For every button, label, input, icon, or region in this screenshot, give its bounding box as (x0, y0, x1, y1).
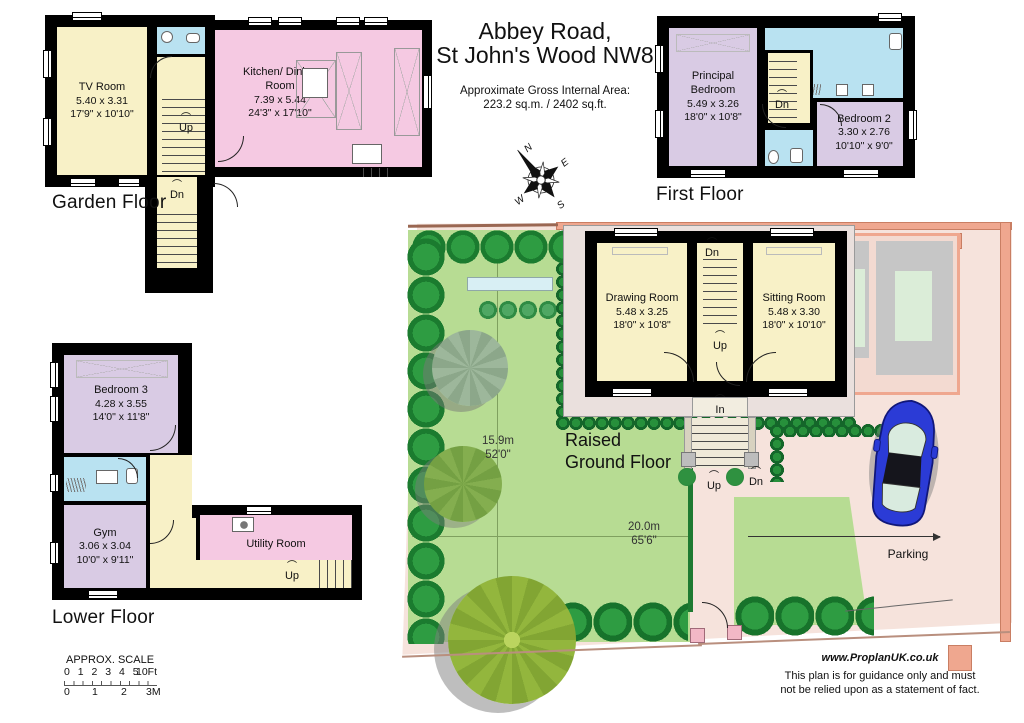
room-metric: 3.30 x 2.76 (838, 126, 890, 140)
entrance-steps (692, 418, 748, 468)
window-marker (88, 590, 118, 599)
area-value: 223.2 sq.m. / 2402 sq.ft. (420, 99, 670, 111)
floorplan-canvas: Abbey Road, St John's Wood NW8 Approxima… (0, 0, 1024, 723)
tree-icon (800, 552, 878, 638)
window-marker (50, 362, 59, 388)
window-marker (246, 506, 272, 515)
bush-icon (678, 468, 696, 486)
room-imperial: 10'10" x 9'0" (835, 140, 893, 154)
room-imperial: 17'9" x 10'10" (70, 108, 133, 122)
garden-pond (467, 277, 553, 291)
room-imperial: 18'0" x 10'10" (762, 319, 825, 333)
window-marker (72, 12, 102, 21)
scale-title: APPROX. SCALE (66, 654, 184, 666)
boundary-wall-right (1000, 222, 1011, 642)
garden-width-dimension: 20.0m 65'6" (614, 520, 674, 549)
garden-depth-dimension: 15.9m 52'0" (468, 434, 528, 463)
dn-label: Dn (698, 241, 726, 260)
toilet-icon (186, 33, 200, 43)
page-title-line1: Abbey Road, (420, 18, 670, 45)
hedge-parking-h (770, 424, 884, 437)
room-name: TV Room (79, 80, 125, 94)
window-marker (770, 228, 814, 237)
gate-post (690, 628, 705, 643)
tree-icon (432, 330, 508, 406)
scale-m-0: 0 (64, 686, 70, 698)
room-gym: Gym 3.06 x 3.04 10'0" x 9'11" (64, 505, 146, 588)
parking-label: Parking (878, 547, 938, 562)
toilet-icon (889, 33, 902, 50)
scale-m-1: 1 (92, 686, 98, 698)
tree-column-left (402, 238, 452, 644)
window-marker (908, 110, 917, 140)
up-label: Up (706, 334, 734, 353)
garden-floor-stairs-down (157, 207, 197, 267)
step-post (744, 452, 759, 467)
exterior-steps (356, 168, 392, 177)
room-metric: 5.48 x 3.30 (768, 306, 820, 320)
room-imperial: 18'0" x 10'8" (684, 111, 742, 125)
scale-ft-end: 10Ft (136, 666, 157, 678)
kitchen-sink-icon (352, 144, 382, 164)
window-marker (843, 169, 879, 178)
window-marker (118, 178, 140, 187)
window-marker (43, 118, 52, 146)
up-label: Up (278, 564, 306, 583)
room-tv-room: TV Room 5.40 x 3.31 17'9" x 10'10" (57, 27, 147, 175)
dn-label: Dn (742, 470, 770, 489)
room-name: Principal Bedroom (675, 69, 751, 98)
sink-icon (862, 84, 874, 96)
room-metric: 5.40 x 3.31 (76, 95, 128, 109)
window-marker (768, 388, 808, 397)
window-marker (70, 178, 96, 187)
room-utility: Utility Room (200, 515, 352, 560)
door-arc (214, 183, 238, 207)
room-name: Sitting Room (763, 291, 826, 305)
window-marker (50, 396, 59, 422)
scale-ft-numbers: 0 1 2 3 4 5 (64, 666, 141, 678)
bush-row (478, 300, 558, 320)
website-label: www.ProplanUK.co.uk (760, 652, 1000, 664)
room-name: Gym (93, 526, 116, 540)
toilet-icon (790, 148, 803, 163)
window-marker (655, 45, 664, 73)
window-marker (423, 75, 432, 109)
in-label: In (702, 398, 738, 417)
room-imperial: 14'0" x 11'8" (93, 411, 150, 425)
bed-icon (676, 34, 750, 52)
window-marker (50, 474, 59, 492)
sink-icon (96, 470, 118, 484)
sink-icon (161, 31, 173, 43)
scale-bar: APPROX. SCALE 0 1 2 3 4 5 10Ft 0 1 2 3M (64, 654, 184, 699)
lower-floor-title: Lower Floor (52, 607, 155, 629)
step-post (681, 452, 696, 467)
kitchen-counter (394, 48, 420, 136)
gate-post (727, 625, 742, 640)
washer-icon (232, 517, 254, 532)
scale-m-3: 3M (146, 686, 161, 698)
room-metric: 3.06 x 3.04 (79, 540, 131, 554)
parking-arrow-line (748, 536, 940, 537)
compass-e-label: E (559, 157, 571, 170)
window-marker (655, 110, 664, 138)
room-imperial: 18'0" x 10'8" (613, 319, 671, 333)
room-name: Utility Room (246, 537, 305, 551)
room-name: Bedroom 2 (837, 112, 891, 126)
room-name: Bedroom 3 (94, 383, 148, 397)
window-marker (612, 388, 652, 397)
hob-icon (302, 68, 328, 98)
sink-icon (836, 84, 848, 96)
up-label: Up (700, 474, 728, 493)
window-marker (614, 228, 658, 237)
compass-icon: N E S W (499, 134, 583, 218)
window-seat (766, 247, 822, 255)
room-metric: 5.48 x 3.25 (616, 306, 668, 320)
page-title-line2: St John's Wood NW8 (420, 42, 670, 69)
raised-ground-floor-stairs (703, 252, 737, 330)
compass-w-label: W (513, 193, 528, 208)
window-marker (50, 542, 59, 564)
arrow-tip-icon (933, 533, 941, 541)
room-name: Drawing Room (606, 291, 679, 305)
garden-fence (688, 468, 693, 612)
kitchen-counter (336, 52, 362, 130)
window-marker (690, 169, 726, 178)
raised-ground-floor-title: Raised Ground Floor (565, 430, 671, 473)
bed-icon (76, 360, 168, 378)
room-imperial: 10'0" x 9'11" (77, 554, 134, 568)
window-marker (43, 50, 52, 78)
room-metric: 4.28 x 3.55 (95, 398, 147, 412)
disclaimer: This plan is for guidance only and must … (750, 670, 1010, 698)
sink-icon (768, 150, 779, 164)
up-label: Up (170, 116, 202, 135)
large-tree-icon (448, 576, 576, 704)
scale-m-2: 2 (121, 686, 127, 698)
area-label: Approximate Gross Internal Area: (420, 85, 670, 97)
room-metric: 5.49 x 3.26 (687, 98, 739, 112)
first-floor-title: First Floor (656, 184, 744, 206)
shower-icon (66, 478, 86, 492)
hedge-parking-v (770, 424, 784, 482)
compass-n-label: N (522, 141, 535, 155)
window-marker (364, 17, 388, 26)
window-seat (612, 247, 668, 255)
skylight (895, 271, 932, 341)
garden-floor-title: Garden Floor (52, 192, 166, 214)
window-marker (248, 17, 272, 26)
window-marker (278, 17, 302, 26)
lower-floor-stairs (312, 560, 352, 588)
compass-s-label: S (555, 199, 567, 212)
window-marker (336, 17, 360, 26)
window-marker (878, 13, 902, 22)
